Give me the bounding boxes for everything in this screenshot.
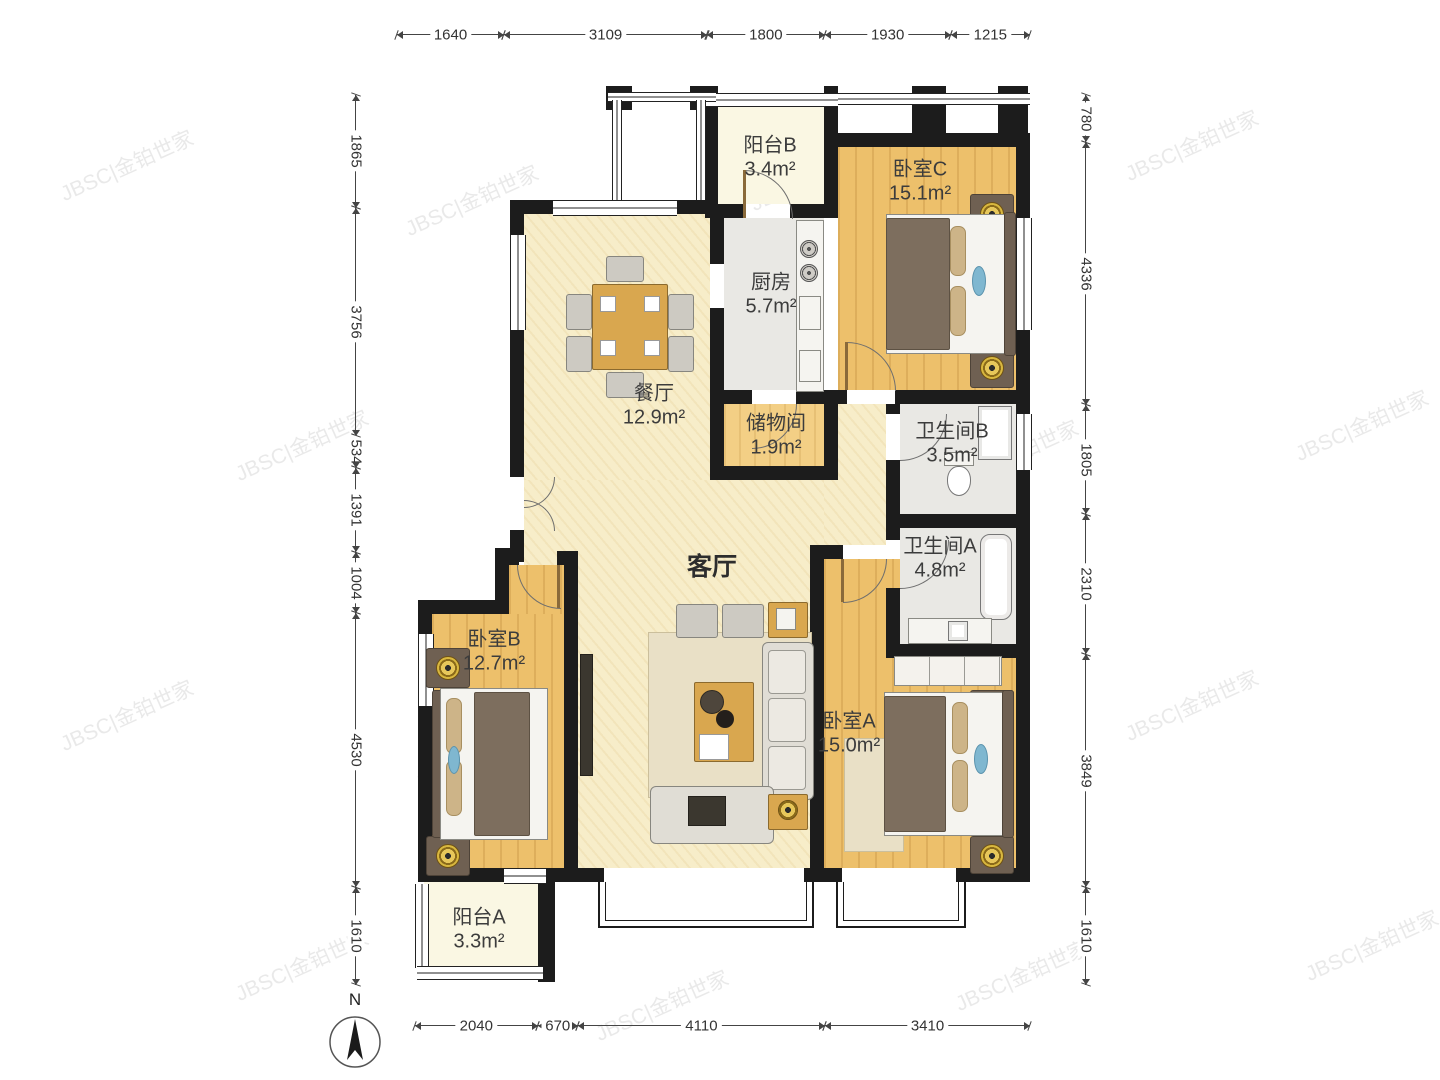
dimension-segment: 1004 (355, 552, 356, 613)
wall (838, 133, 1030, 147)
wall (838, 390, 847, 404)
dimension-tick (1028, 30, 1033, 40)
bathtub (980, 534, 1012, 620)
duvet (474, 692, 530, 836)
window (696, 100, 706, 200)
wall (710, 218, 724, 264)
dimension-segment: 3756 (355, 208, 356, 436)
dimension-segment: 4336 (1085, 142, 1086, 405)
dimension-label: 1610 (1078, 916, 1095, 957)
room-label-bath-b: 卫生间B 3.5m² (915, 420, 988, 469)
kitchen-cabinet (799, 350, 821, 382)
dimension-tick (1081, 93, 1091, 98)
window (504, 868, 546, 884)
room-label-balcony-b: 阳台B 3.4m² (743, 134, 796, 183)
wall (495, 551, 519, 565)
watermark-text: JBSC|金铂世家 (1120, 662, 1263, 748)
headboard (1002, 690, 1014, 838)
dimension-label: 534 (348, 435, 365, 468)
dimension-label: 780 (1078, 102, 1095, 135)
door-leaf (557, 565, 560, 608)
bay-opening (842, 868, 956, 882)
window (612, 100, 622, 200)
watermark-text: JBSC|金铂世家 (590, 962, 733, 1048)
dimension-label: 3849 (1078, 750, 1095, 791)
sink (948, 621, 968, 641)
tv-cabinet (580, 654, 593, 776)
wall (557, 551, 578, 565)
dimension-label: 2040 (456, 1018, 497, 1035)
dimension-segment: 3410 (825, 1025, 1030, 1026)
dimension-chain-right: 78043361805231038491610 (1078, 95, 1092, 985)
decor (972, 266, 986, 296)
lamp (980, 356, 1004, 380)
dimension-label: 4530 (348, 730, 365, 771)
watermark-text: JBSC|金铂世家 (55, 122, 198, 208)
watermark-text: JBSC|金铂世家 (1120, 102, 1263, 188)
wall (564, 551, 578, 882)
room-label-bedroom-b: 卧室B 12.7m² (463, 628, 525, 677)
chair (668, 294, 694, 330)
dimension-label: 4336 (1078, 253, 1095, 294)
dimension-segment: 1610 (1085, 887, 1086, 985)
room-label-bedroom-a: 卧室A 15.0m² (818, 710, 880, 759)
wall (886, 514, 1030, 528)
room-label-kitchen: 厨房 5.7m² (745, 271, 796, 320)
watermark-text: JBSC|金铂世家 (55, 672, 198, 758)
dimension-label: 1004 (348, 562, 365, 603)
dimension-label: 1215 (970, 27, 1011, 44)
dimension-chain-left: 186537565341391100445301610 (348, 95, 362, 985)
stove-burner (800, 240, 818, 258)
wall (886, 528, 900, 540)
dimension-segment: 1391 (355, 468, 356, 552)
dimension-segment: 1640 (397, 34, 504, 35)
door-leaf (841, 559, 844, 602)
wardrobe (894, 656, 1002, 686)
dimension-label: 3756 (348, 301, 365, 342)
decor (974, 744, 988, 774)
dimension-segment: 780 (1085, 95, 1086, 142)
tray (699, 734, 729, 760)
lamp (436, 844, 460, 868)
room-label-bath-a: 卫生间A 4.8m² (903, 535, 976, 584)
sofa-cushion (768, 746, 806, 790)
window (553, 200, 677, 216)
wall (710, 466, 838, 480)
dimension-tick (413, 1021, 418, 1031)
bay-window (598, 882, 814, 928)
pillow (952, 760, 968, 812)
dimension-label: 2310 (1078, 564, 1095, 605)
plate (600, 340, 616, 356)
chair (566, 294, 592, 330)
window (415, 884, 429, 968)
pillow (950, 286, 966, 336)
dimension-label: 3109 (585, 27, 626, 44)
toilet (947, 466, 971, 496)
kitchen-sink (799, 296, 821, 330)
window (510, 235, 526, 330)
watermark-text: JBSC|金铂世家 (1300, 902, 1440, 988)
dimension-segment: 3109 (504, 34, 707, 35)
seat-cushion (688, 796, 726, 826)
book (776, 608, 796, 630)
lamp (436, 656, 460, 680)
sofa-cushion (768, 650, 806, 694)
room-label-bedroom-c: 卧室C 15.1m² (889, 158, 951, 207)
floor-plan-canvas: JBSC|金铂世家JBSC|金铂世家JBSC|金铂世家JBSC|金铂世家JBSC… (0, 0, 1440, 1080)
dimension-segment: 1865 (355, 95, 356, 208)
sofa-cushion (768, 698, 806, 742)
bay-window (836, 882, 966, 928)
room-label-balcony-a: 阳台A 3.3m² (452, 906, 505, 955)
dimension-segment: 1805 (1085, 405, 1086, 514)
dimension-segment: 1800 (707, 34, 825, 35)
dimension-label: 670 (541, 1018, 574, 1035)
lamp (778, 800, 798, 820)
bay-opening (604, 868, 804, 882)
floor-corridor (838, 404, 886, 545)
dimension-segment: 3849 (1085, 654, 1086, 887)
dimension-segment: 534 (355, 436, 356, 468)
wall (886, 404, 900, 414)
window (705, 93, 838, 107)
plate (644, 296, 660, 312)
dimension-segment: 2040 (415, 1025, 538, 1026)
dimension-tick (351, 93, 361, 98)
duvet (886, 218, 950, 350)
dimension-label: 4110 (681, 1018, 721, 1035)
room-label-living: 客厅 (687, 552, 737, 583)
dimension-label: 1930 (867, 27, 908, 44)
window (1016, 218, 1032, 330)
dimension-segment: 1610 (355, 887, 356, 985)
dimension-label: 1865 (348, 131, 365, 172)
dimension-tick (351, 983, 361, 988)
dimension-segment: 1930 (825, 34, 951, 35)
decor (448, 746, 460, 774)
compass-north-label: N (349, 990, 361, 1010)
dimension-chain-top: 16403109180019301215 (397, 27, 1030, 41)
window (417, 966, 543, 980)
dimension-segment: 4530 (355, 613, 356, 887)
decor-bowl (716, 710, 734, 728)
plate (600, 296, 616, 312)
wall (810, 545, 843, 559)
window (838, 93, 1030, 105)
dimension-label: 1805 (1078, 439, 1095, 480)
pillow (952, 702, 968, 754)
watermark-text: JBSC|金铂世家 (1290, 382, 1433, 468)
wall (895, 390, 1030, 404)
dimension-label: 1800 (745, 27, 786, 44)
stove-burner (800, 264, 818, 282)
dimension-tick (395, 30, 400, 40)
plate (644, 340, 660, 356)
dimension-segment: 670 (538, 1025, 578, 1026)
chair (668, 336, 694, 372)
chair (566, 336, 592, 372)
room-label-dining: 餐厅 12.9m² (623, 382, 685, 431)
dimension-label: 3410 (907, 1018, 948, 1035)
dimension-tick (1028, 1021, 1033, 1031)
dimension-segment: 1215 (951, 34, 1030, 35)
chair (606, 256, 644, 282)
armchair (722, 604, 764, 638)
room-label-storage: 储物间 1.9m² (746, 412, 806, 461)
dimension-chain-bottom: 204067041103410 (415, 1018, 1030, 1032)
wall (718, 204, 744, 218)
door-leaf (845, 342, 848, 390)
dimension-label: 1610 (348, 916, 365, 957)
duvet (884, 696, 946, 832)
dimension-segment: 2310 (1085, 514, 1086, 654)
dimension-label: 1640 (430, 27, 471, 44)
watermark-text: JBSC|金铂世家 (950, 932, 1093, 1018)
lamp (980, 844, 1004, 868)
north-arrow-icon (327, 1014, 383, 1070)
dimension-tick (1081, 983, 1091, 988)
pillow (950, 226, 966, 276)
dimension-label: 1391 (348, 489, 365, 530)
headboard (1004, 212, 1016, 356)
dimension-segment: 4110 (578, 1025, 825, 1026)
armchair (676, 604, 718, 638)
wall (790, 204, 838, 218)
window (1016, 414, 1032, 470)
